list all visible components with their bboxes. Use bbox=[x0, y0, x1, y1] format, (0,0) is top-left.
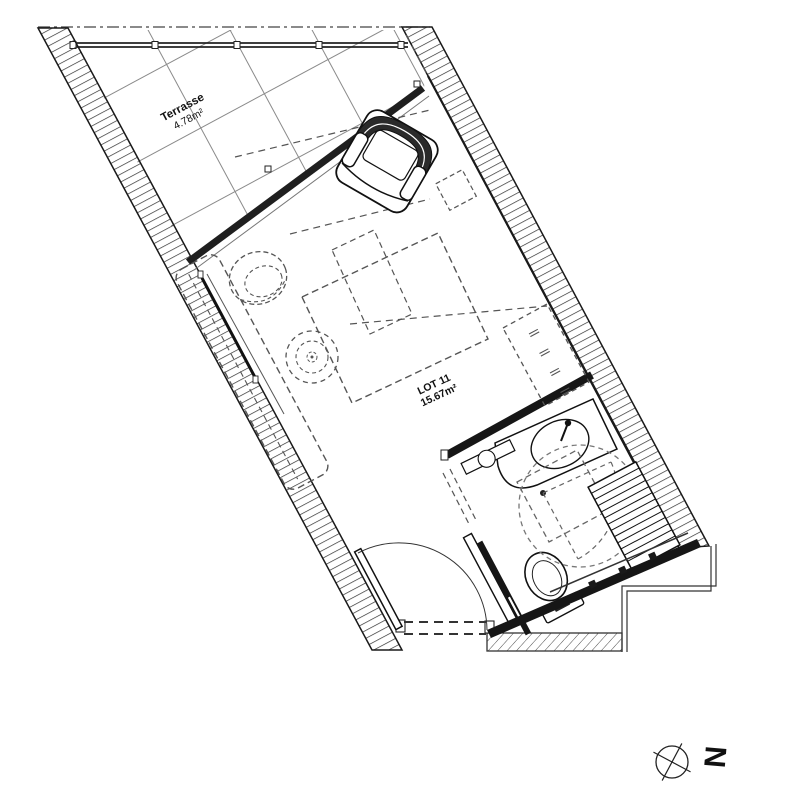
lounge-chair bbox=[222, 244, 294, 313]
terrace-label-group: Terrasse 4.78m² bbox=[159, 91, 212, 135]
bed-headboard bbox=[332, 230, 412, 334]
bedside-table bbox=[436, 170, 477, 211]
north-symbol: N bbox=[644, 734, 732, 791]
bathroom-door-opening bbox=[443, 469, 477, 526]
floor-plan-svg: Terrasse 4.78m² LOT 11 15.67m² N bbox=[0, 0, 792, 800]
terrace-guardrail bbox=[70, 42, 408, 49]
armchair bbox=[332, 106, 442, 217]
north-letter: N bbox=[697, 745, 732, 769]
floor-plan-page: Terrasse 4.78m² LOT 11 15.67m² N bbox=[0, 0, 792, 800]
bathroom-lower-wall bbox=[487, 539, 701, 638]
lot-label-group: LOT 11 15.67m² bbox=[414, 371, 460, 409]
left-exterior-wall bbox=[38, 28, 402, 650]
bed bbox=[302, 233, 488, 403]
bottom-exterior-wall bbox=[487, 633, 622, 651]
bathroom-door-leaf bbox=[463, 534, 516, 623]
